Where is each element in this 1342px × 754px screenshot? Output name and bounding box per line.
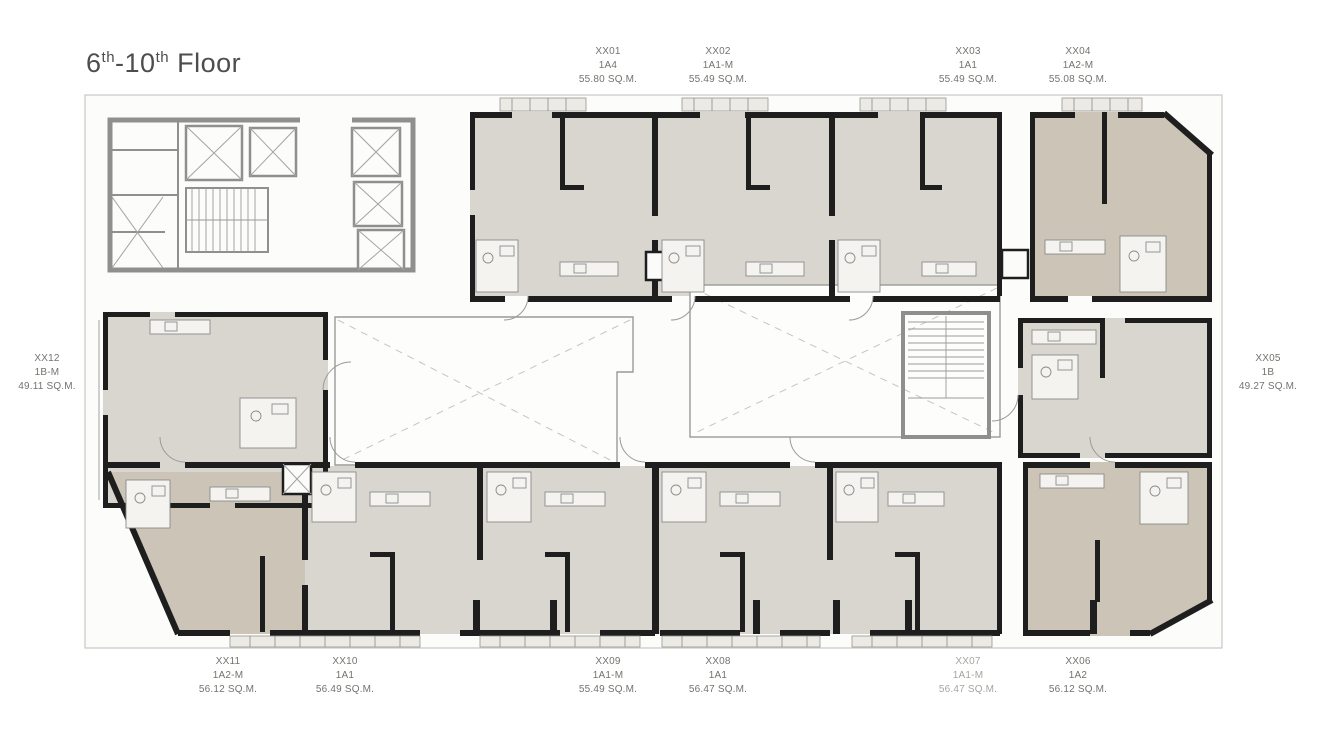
unit-id: XX07 <box>939 655 997 669</box>
shaft-with-x <box>283 464 311 494</box>
unit-label-xx07: XX07 1A1-M 56.47 SQ.M. <box>939 655 997 697</box>
floor-plan-drawing <box>0 0 1342 754</box>
title-sup-2: th <box>156 49 170 66</box>
unit-type: 1A1 <box>316 669 374 683</box>
unit-label-xx12: XX12 1B-M 49.11 SQ.M. <box>18 352 76 394</box>
unit-id: XX02 <box>689 45 747 59</box>
unit-id: XX04 <box>1049 45 1107 59</box>
unit-label-xx10: XX10 1A1 56.49 SQ.M. <box>316 655 374 697</box>
page-title: 6th-10th Floor <box>86 48 241 79</box>
unit-area: 55.49 SQ.M. <box>579 683 637 697</box>
unit-id: XX03 <box>939 45 997 59</box>
unit-label-xx08: XX08 1A1 56.47 SQ.M. <box>689 655 747 697</box>
unit-label-xx09: XX09 1A1-M 55.49 SQ.M. <box>579 655 637 697</box>
unit-type: 1B-M <box>18 366 76 380</box>
unit-id: XX05 <box>1239 352 1297 366</box>
unit-area: 55.49 SQ.M. <box>939 73 997 87</box>
unit-area: 49.11 SQ.M. <box>18 380 76 394</box>
title-floor-mid: -10 <box>115 48 156 78</box>
unit-label-xx11: XX11 1A2-M 56.12 SQ.M. <box>199 655 257 697</box>
courtyard-left <box>335 317 633 465</box>
unit-area: 55.08 SQ.M. <box>1049 73 1107 87</box>
title-floor-start: 6 <box>86 48 102 78</box>
unit-type: 1A1-M <box>579 669 637 683</box>
unit-id: XX10 <box>316 655 374 669</box>
unit-id: XX09 <box>579 655 637 669</box>
unit-id: XX11 <box>199 655 257 669</box>
unit-type: 1A4 <box>579 59 637 73</box>
unit-label-xx03: XX03 1A1 55.49 SQ.M. <box>939 45 997 87</box>
courtyard-right <box>690 285 1000 437</box>
unit-label-xx04: XX04 1A2-M 55.08 SQ.M. <box>1049 45 1107 87</box>
unit-type: 1B <box>1239 366 1297 380</box>
unit-label-xx05: XX05 1B 49.27 SQ.M. <box>1239 352 1297 394</box>
unit-area: 55.49 SQ.M. <box>689 73 747 87</box>
unit-type: 1A2-M <box>1049 59 1107 73</box>
unit-type: 1A1 <box>939 59 997 73</box>
unit-id: XX01 <box>579 45 637 59</box>
unit-type: 1A1-M <box>689 59 747 73</box>
title-sup-1: th <box>102 49 116 66</box>
title-floor-word: Floor <box>169 48 241 78</box>
unit-id: XX08 <box>689 655 747 669</box>
unit-area: 56.12 SQ.M. <box>199 683 257 697</box>
unit-id: XX12 <box>18 352 76 366</box>
unit-area: 56.49 SQ.M. <box>316 683 374 697</box>
unit-label-xx02: XX02 1A1-M 55.49 SQ.M. <box>689 45 747 87</box>
unit-area: 56.12 SQ.M. <box>1049 683 1107 697</box>
unit-area: 49.27 SQ.M. <box>1239 380 1297 394</box>
unit-label-xx01: XX01 1A4 55.80 SQ.M. <box>579 45 637 87</box>
unit-area: 56.47 SQ.M. <box>689 683 747 697</box>
unit-type: 1A2 <box>1049 669 1107 683</box>
unit-type: 1A1-M <box>939 669 997 683</box>
unit-type: 1A2-M <box>199 669 257 683</box>
unit-id: XX06 <box>1049 655 1107 669</box>
unit-area: 55.80 SQ.M. <box>579 73 637 87</box>
unit-type: 1A1 <box>689 669 747 683</box>
unit-label-xx06: XX06 1A2 56.12 SQ.M. <box>1049 655 1107 697</box>
unit-area: 56.47 SQ.M. <box>939 683 997 697</box>
